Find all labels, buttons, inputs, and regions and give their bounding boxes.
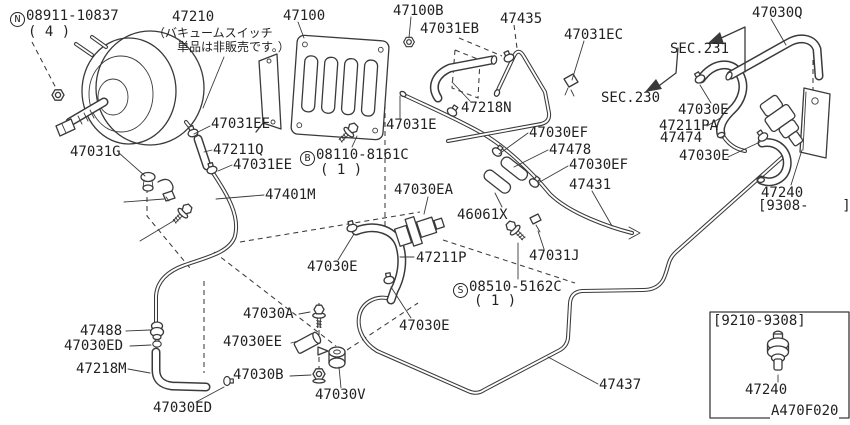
inset-part-47240: 47240 [745, 383, 787, 398]
fastener-S-qty: ( 1 ) [474, 294, 516, 309]
part-47030E-3: 47030E [307, 260, 358, 275]
fitting-chain [151, 322, 164, 340]
connector-tubes [482, 155, 529, 195]
vacuum-switch-drawing [756, 88, 830, 158]
part-47211Q: 47211Q [213, 143, 264, 158]
diagram-line-art [0, 0, 850, 425]
fastener-N-qty: ( 4 ) [28, 25, 70, 40]
part-47218N: 47218N [461, 101, 512, 116]
part-47474: 47474 [660, 131, 702, 146]
part-47031E: 47031E [386, 118, 437, 133]
part-47030E-4: 47030E [399, 319, 450, 334]
circled-letter-N: N [10, 12, 25, 27]
note-jp-line2: 単品は非販売です。） [177, 41, 290, 54]
inset-date-range: [9210-9308] [713, 314, 806, 329]
part-46061X: 46061X [457, 208, 508, 223]
part-47100B: 47100B [393, 4, 444, 19]
inset-pressure-switch-drawing [768, 331, 789, 370]
part-47431: 47431 [569, 178, 611, 193]
part-47031EB: 47031EB [420, 22, 479, 37]
part-47030E-1: 47030E [678, 103, 729, 118]
clip-cluster [141, 173, 175, 202]
diagram-code: A470F020 [770, 404, 839, 419]
part-47030E-2: 47030E [679, 149, 730, 164]
part-47435: 47435 [500, 12, 542, 27]
part-47210: 47210 [172, 10, 214, 25]
part-47437: 47437 [599, 378, 641, 393]
part-47031J: 47031J [529, 249, 580, 264]
part-47030V: 47030V [315, 388, 366, 403]
gasket-plate-drawing [291, 35, 390, 140]
part-47211P: 47211P [416, 251, 467, 266]
part-47031EC: 47031EC [564, 28, 623, 43]
part-47030Q: 47030Q [752, 6, 803, 21]
part-47401M: 47401M [265, 188, 316, 203]
section-arrows [645, 27, 745, 92]
part-47478: 47478 [549, 143, 591, 158]
circled-letter-B: B [300, 151, 315, 166]
part-47030EF-1: 47030EF [529, 126, 588, 141]
part-47030EF-2: 47030EF [569, 158, 628, 173]
part-47218M: 47218M [76, 362, 127, 377]
fastener-B-qty: ( 1 ) [320, 163, 362, 178]
parts-diagram: N08911-10837( 4 )47210（バキュームスイッチ単品は非販売です… [0, 0, 850, 425]
part-47100: 47100 [283, 9, 325, 24]
part-47030B: 47030B [233, 368, 284, 383]
part-47031EE-2: 47031EE [233, 158, 292, 173]
part-47030ED-2: 47030ED [153, 401, 212, 416]
section-ref-230: SEC.230 [601, 91, 660, 106]
part-47031G: 47031G [70, 145, 121, 160]
part-47031EE-1: 47031EE [211, 117, 270, 132]
part-47030EA: 47030EA [394, 183, 453, 198]
section-ref-231: SEC.231 [670, 42, 729, 57]
part-47488: 47488 [80, 324, 122, 339]
part-47030A: 47030A [243, 307, 294, 322]
note-jp-line1: （バキュームスイッチ [153, 27, 273, 40]
circled-letter-S: S [453, 283, 468, 298]
part-47240-date-range: [9308- ] [758, 199, 850, 214]
part-47030ED-1: 47030ED [64, 339, 123, 354]
part-47030EE: 47030EE [223, 335, 282, 350]
